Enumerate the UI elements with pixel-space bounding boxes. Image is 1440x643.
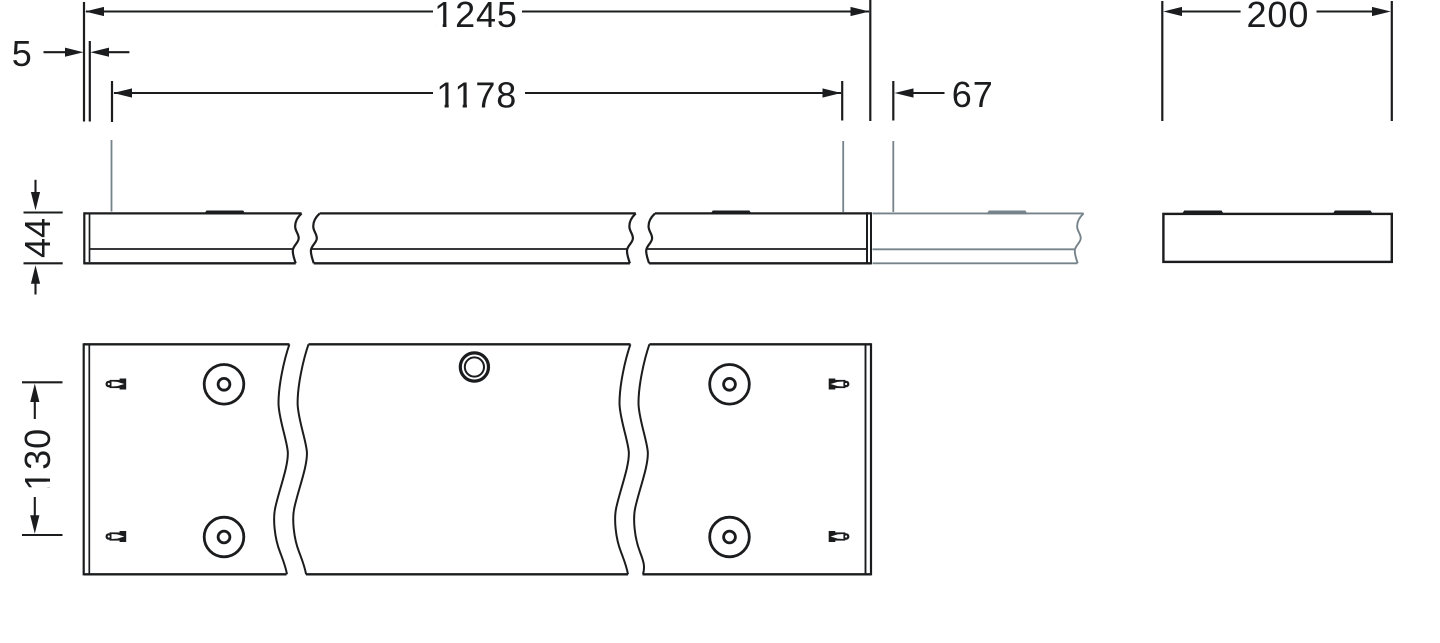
svg-text:5: 5 xyxy=(12,33,32,74)
svg-text:130: 130 xyxy=(17,428,58,491)
svg-text:67: 67 xyxy=(952,74,994,115)
svg-text:44: 44 xyxy=(17,218,58,258)
svg-text:1245: 1245 xyxy=(434,0,518,35)
svg-text:1178: 1178 xyxy=(436,75,517,116)
svg-text:200: 200 xyxy=(1247,0,1310,35)
